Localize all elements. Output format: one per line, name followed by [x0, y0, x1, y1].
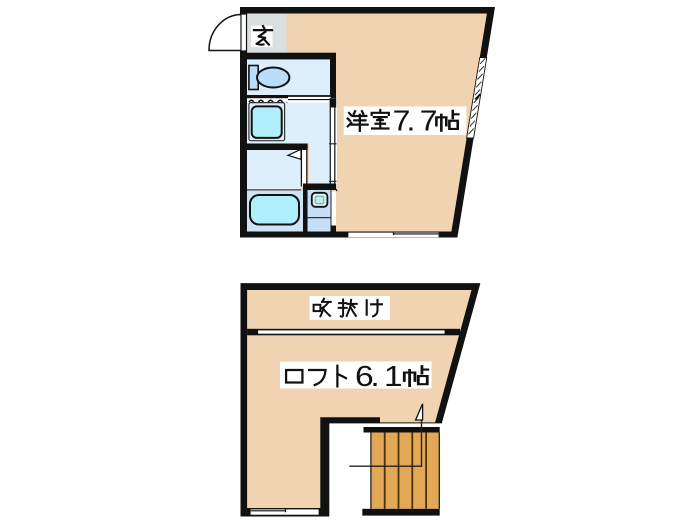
- svg-text:1: 1: [384, 360, 403, 392]
- svg-text:.: .: [406, 106, 415, 137]
- svg-text:.: .: [370, 360, 379, 392]
- svg-text:7: 7: [420, 106, 438, 137]
